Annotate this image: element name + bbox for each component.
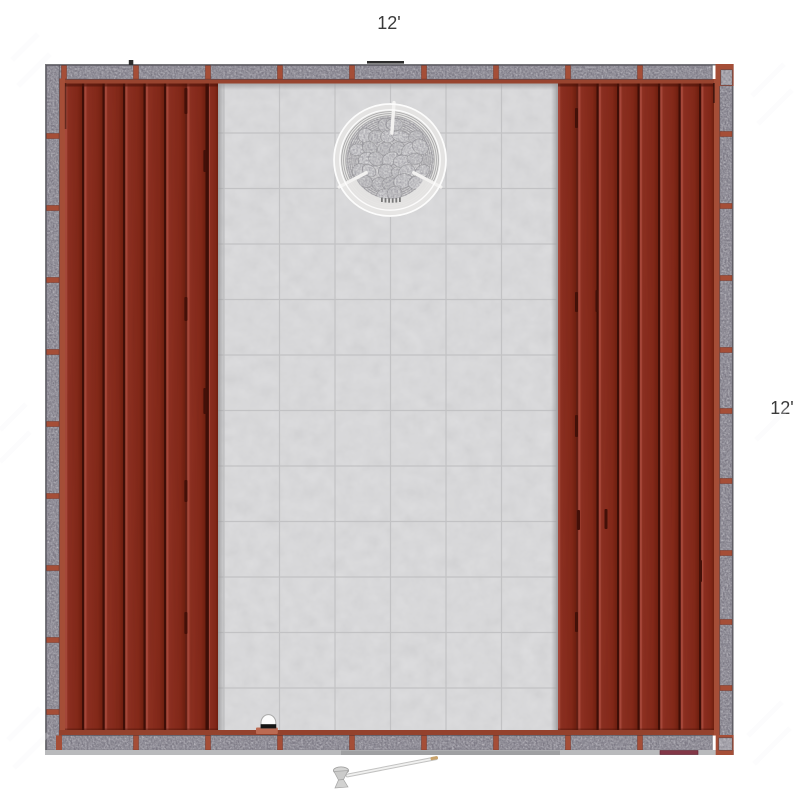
svg-text:12': 12' xyxy=(377,13,400,33)
